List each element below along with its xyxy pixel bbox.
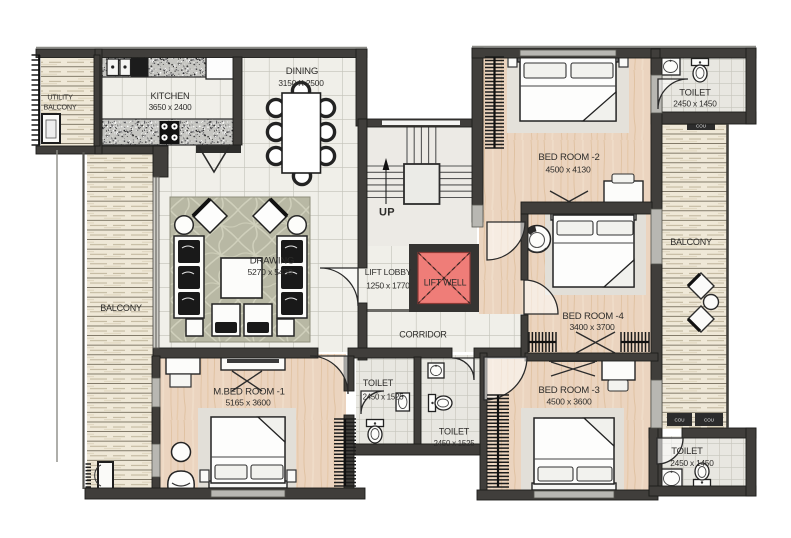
svg-text:2450 x 1450: 2450 x 1450 — [673, 99, 717, 109]
svg-text:3400 x 3700: 3400 x 3700 — [569, 322, 615, 332]
svg-text:TOILET: TOILET — [363, 378, 394, 388]
svg-text:1250 x 1770: 1250 x 1770 — [366, 281, 410, 291]
svg-text:BALCONY: BALCONY — [100, 303, 142, 313]
svg-text:BED ROOM -3: BED ROOM -3 — [538, 385, 599, 396]
svg-text:BED ROOM -4: BED ROOM -4 — [562, 311, 624, 322]
svg-text:BED ROOM -2: BED ROOM -2 — [538, 152, 599, 163]
svg-text:TOILET: TOILET — [679, 87, 711, 98]
svg-text:COU: COU — [675, 418, 685, 423]
svg-text:M.BED ROOM -1: M.BED ROOM -1 — [213, 387, 285, 398]
svg-text:2450 x 1525: 2450 x 1525 — [363, 393, 405, 402]
svg-text:3150 X 2500: 3150 X 2500 — [278, 78, 324, 88]
svg-text:DINING: DINING — [286, 66, 318, 77]
svg-text:TOILET: TOILET — [439, 427, 470, 437]
svg-text:TOILET: TOILET — [671, 445, 703, 456]
svg-text:4500 x 3600: 4500 x 3600 — [546, 397, 592, 407]
svg-text:LIFT WELL: LIFT WELL — [424, 278, 467, 288]
svg-text:5270 x 5430: 5270 x 5430 — [247, 267, 293, 277]
svg-text:KITCHEN: KITCHEN — [151, 91, 190, 101]
svg-text:3650 x 2400: 3650 x 2400 — [149, 103, 193, 112]
svg-text:5165 x 3600: 5165 x 3600 — [225, 398, 271, 408]
svg-text:4500 x 4130: 4500 x 4130 — [545, 165, 591, 175]
svg-text:COU: COU — [704, 418, 714, 423]
svg-text:DRAWING: DRAWING — [250, 256, 295, 267]
svg-text:CORRIDOR: CORRIDOR — [399, 330, 447, 340]
svg-text:UP: UP — [379, 207, 395, 219]
svg-text:LIFT LOBBY: LIFT LOBBY — [365, 267, 412, 277]
svg-text:BALCONY: BALCONY — [44, 103, 77, 112]
svg-text:BALCONY: BALCONY — [670, 237, 712, 247]
svg-text:2450 x 1450: 2450 x 1450 — [670, 458, 714, 468]
svg-text:UTILITY: UTILITY — [47, 93, 73, 102]
svg-text:2450 x 1525: 2450 x 1525 — [434, 439, 476, 448]
